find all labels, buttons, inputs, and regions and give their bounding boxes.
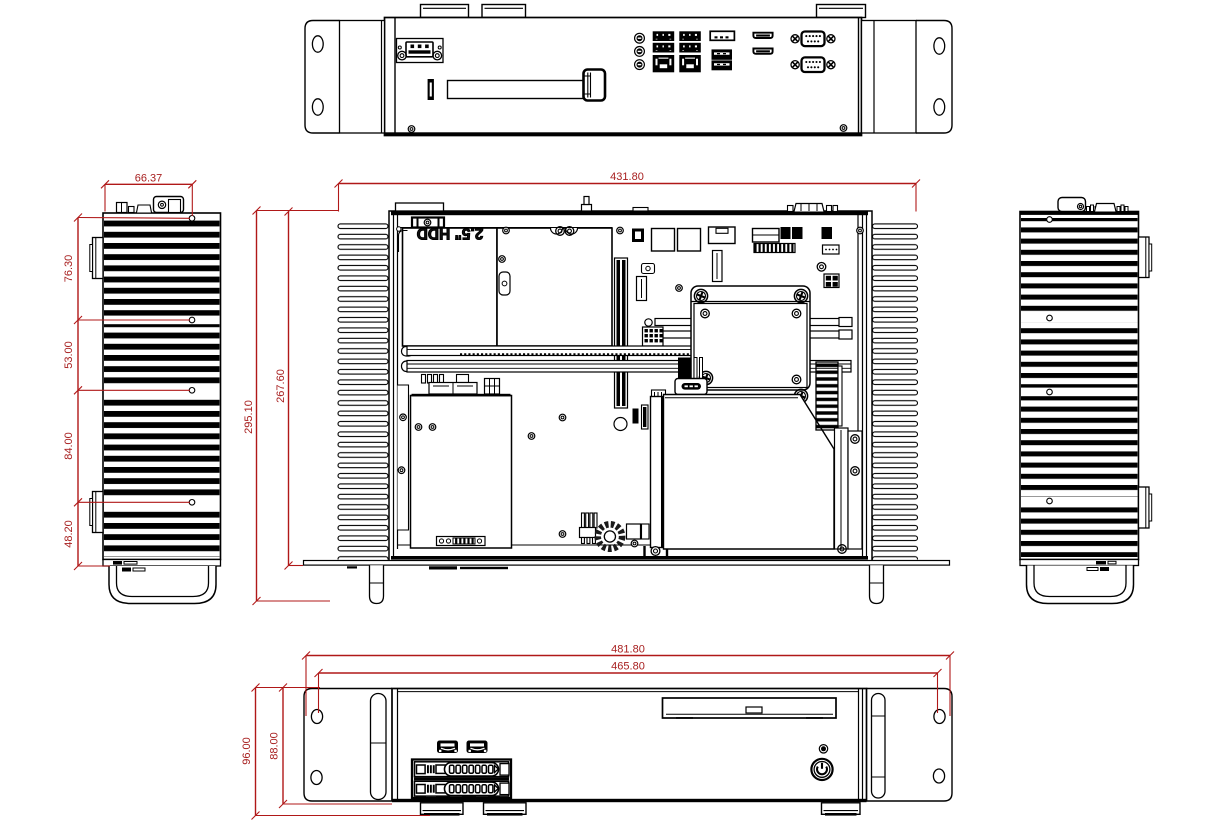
svg-text:465.80: 465.80 [611, 661, 645, 673]
svg-text:53.00: 53.00 [63, 341, 75, 369]
svg-text:267.60: 267.60 [275, 369, 287, 403]
svg-text:66.37: 66.37 [135, 173, 163, 185]
svg-text:84.00: 84.00 [63, 432, 75, 460]
svg-text:48.20: 48.20 [63, 520, 75, 548]
svg-text:76.30: 76.30 [63, 255, 75, 283]
svg-text:481.80: 481.80 [611, 644, 645, 656]
svg-text:88.00: 88.00 [269, 732, 281, 760]
svg-text:295.10: 295.10 [243, 400, 255, 434]
svg-text:431.80: 431.80 [610, 171, 644, 183]
svg-text:2.5" HDD: 2.5" HDD [417, 225, 484, 242]
svg-text:96.00: 96.00 [241, 737, 253, 765]
